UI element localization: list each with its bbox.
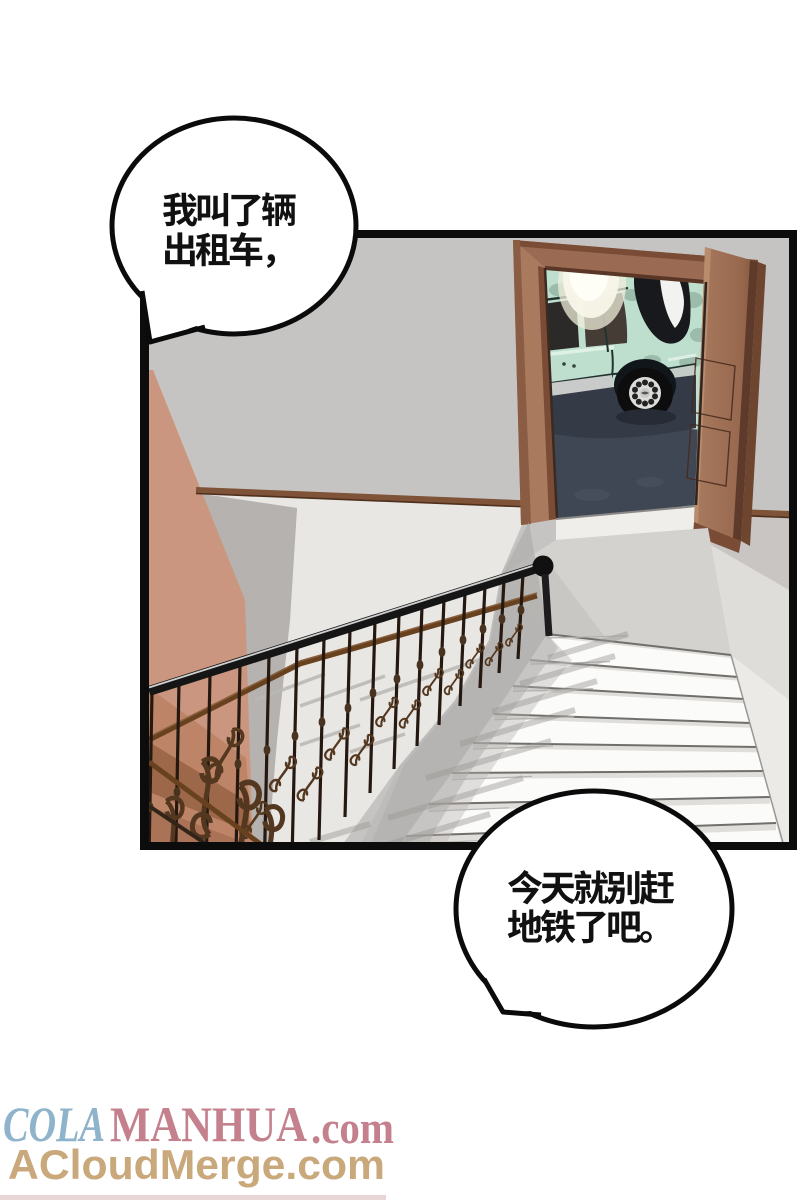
svg-text:ACloudMerge.com: ACloudMerge.com bbox=[8, 1141, 385, 1188]
